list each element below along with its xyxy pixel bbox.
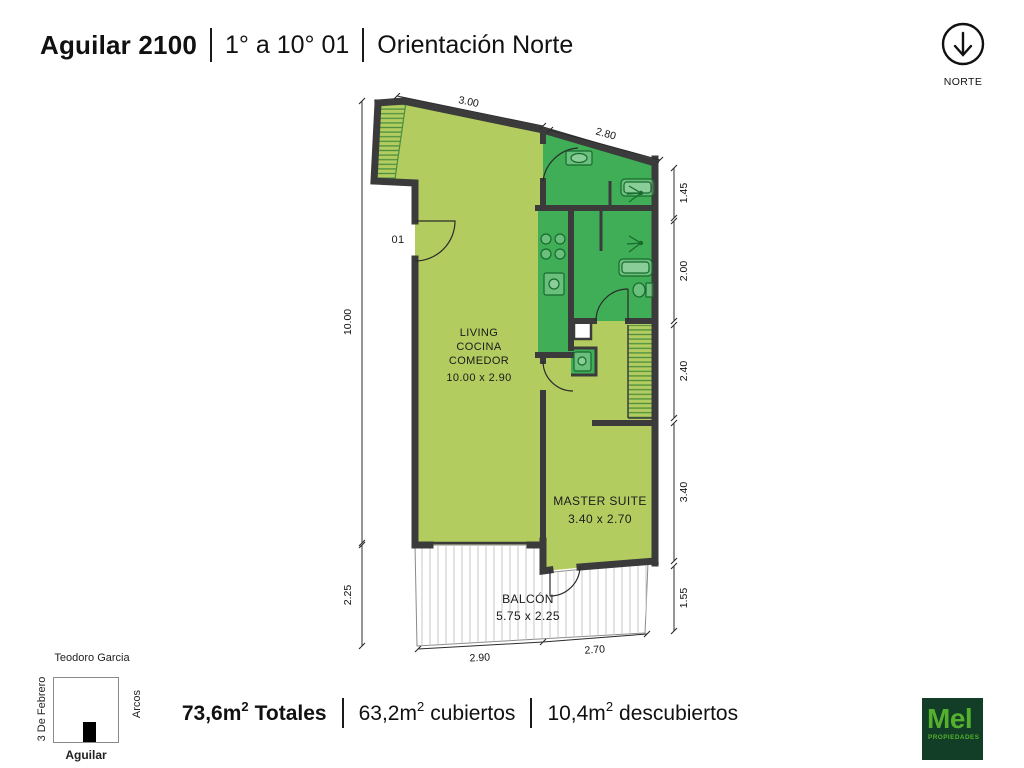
vanity-icon <box>566 151 592 165</box>
kitchen-sink-icon <box>544 273 564 295</box>
header-divider <box>362 28 364 62</box>
dim-left-2: 2.25 <box>342 585 354 606</box>
header-divider <box>210 28 212 62</box>
covered-area-value: 63,2m2 <box>359 700 425 726</box>
dim-bottom-2: 2.70 <box>584 643 605 656</box>
north-label: NORTE <box>930 76 996 88</box>
dim-right-1: 1.45 <box>678 183 690 204</box>
toilet-icon <box>633 283 653 297</box>
master-suite-dims-label: 3.40 x 2.70 <box>568 512 632 526</box>
street-top-label: Teodoro Garcia <box>28 652 156 664</box>
totals-divider <box>530 698 532 728</box>
dim-bottom-1: 2.90 <box>469 651 490 664</box>
shaft <box>574 322 591 339</box>
header: Aguilar 2100 1° a 10° 01 Orientación Nor… <box>40 28 573 62</box>
dim-top-left: 3.00 <box>457 94 480 110</box>
total-area-value: 73,6m2 <box>182 700 249 726</box>
floor-range: 1° a 10° 01 <box>225 31 349 60</box>
arrow-down-icon <box>955 33 971 55</box>
building-title: Aguilar 2100 <box>40 30 197 61</box>
north-badge: NORTE <box>930 14 996 88</box>
floor-plan: 3.00 2.80 1.45 2.00 2.40 3.40 1.55 10.00… <box>338 93 703 672</box>
uncovered-area-label: descubiertos <box>619 702 738 726</box>
dim-left-1: 10.00 <box>342 309 354 335</box>
unit-number-label: 01 <box>391 234 404 246</box>
covered-area-total: 63,2m2 cubiertos <box>359 700 516 726</box>
total-area-label: Totales <box>255 702 327 726</box>
totals-divider <box>342 698 344 728</box>
bathtub-icon <box>619 259 652 276</box>
living-label-2: COCINA <box>456 341 501 353</box>
total-area: 73,6m2 Totales <box>182 700 327 726</box>
area-totals: 73,6m2 Totales 63,2m2 cubiertos 10,4m2 d… <box>0 698 920 728</box>
master-suite-label: MASTER SUITE <box>553 494 646 508</box>
toilette-sink-icon <box>574 352 591 371</box>
living-label-1: LIVING <box>460 327 498 339</box>
dim-right-5: 1.55 <box>678 588 690 609</box>
agency-logo: Mel PROPIEDADES <box>922 698 983 760</box>
covered-area-label: cubiertos <box>430 702 515 726</box>
living-dims-label: 10.00 x 2.90 <box>446 372 511 384</box>
north-arrow-icon <box>930 14 996 70</box>
dim-right-4: 3.40 <box>678 482 690 503</box>
balcony-label: BALCÓN <box>502 591 554 606</box>
balcony-dims-label: 5.75 x 2.25 <box>496 609 560 623</box>
living-label-3: COMEDOR <box>449 355 509 367</box>
uncovered-area-total: 10,4m2 descubiertos <box>547 700 738 726</box>
agency-logo-name: Mel <box>927 704 983 734</box>
dim-right-3: 2.40 <box>678 361 690 382</box>
agency-logo-subtitle: PROPIEDADES <box>928 734 983 741</box>
dim-right-2: 2.00 <box>678 261 690 282</box>
street-bottom-label: Aguilar <box>28 748 144 762</box>
orientation-label: Orientación Norte <box>377 31 573 60</box>
dim-top-right: 2.80 <box>594 126 617 143</box>
patio-area <box>628 325 655 418</box>
uncovered-area-value: 10,4m2 <box>547 700 613 726</box>
